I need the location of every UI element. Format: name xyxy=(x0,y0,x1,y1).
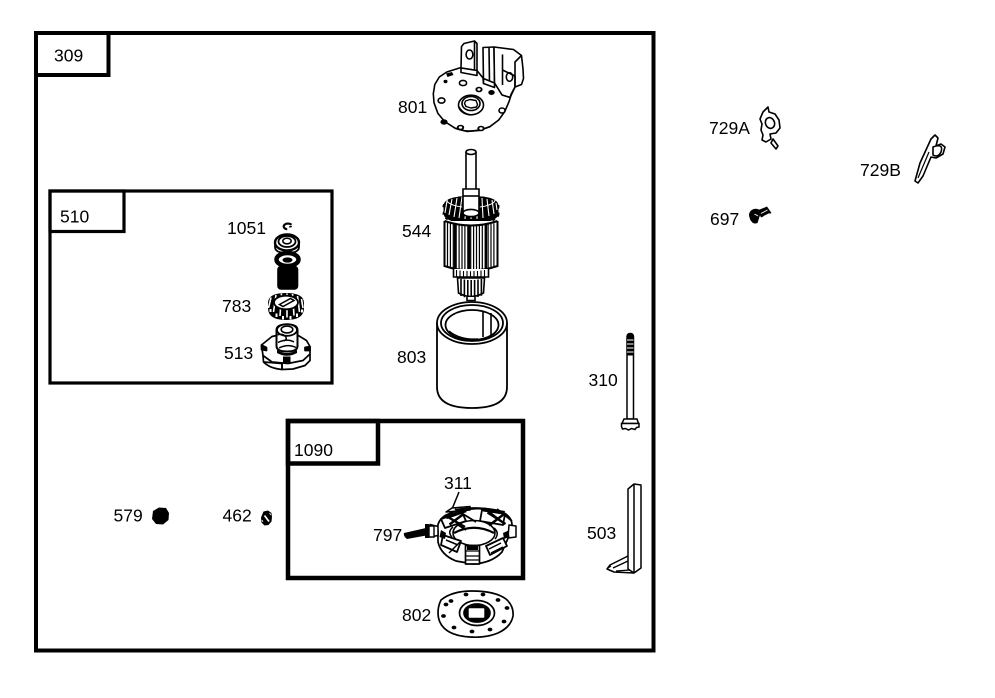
svg-text:462: 462 xyxy=(223,506,252,526)
svg-text:503: 503 xyxy=(587,523,616,543)
svg-text:803: 803 xyxy=(397,347,426,367)
svg-text:1051: 1051 xyxy=(227,218,266,238)
svg-text:729B: 729B xyxy=(860,160,901,180)
svg-text:729A: 729A xyxy=(709,118,750,138)
svg-text:309: 309 xyxy=(54,46,83,66)
svg-text:697: 697 xyxy=(710,209,739,229)
svg-text:510: 510 xyxy=(60,207,89,227)
svg-text:797: 797 xyxy=(373,525,402,545)
svg-text:783: 783 xyxy=(222,296,251,316)
svg-text:513: 513 xyxy=(224,343,253,363)
svg-text:579: 579 xyxy=(114,506,143,526)
svg-text:544: 544 xyxy=(402,221,431,241)
svg-text:801: 801 xyxy=(398,97,427,117)
svg-text:1090: 1090 xyxy=(294,440,333,460)
svg-text:311: 311 xyxy=(444,473,472,493)
svg-text:802: 802 xyxy=(402,605,431,625)
svg-text:310: 310 xyxy=(589,370,618,390)
